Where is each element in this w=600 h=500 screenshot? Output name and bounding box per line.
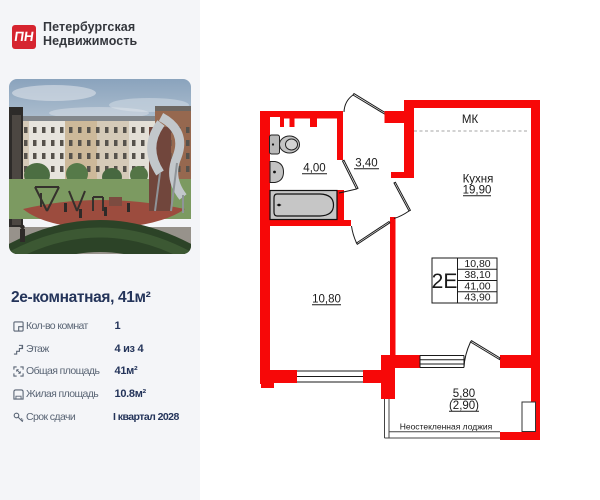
svg-text:5,80: 5,80: [453, 388, 475, 400]
svg-text:41,00: 41,00: [464, 280, 490, 292]
svg-text:Неостекленная лоджия: Неостекленная лоджия: [400, 422, 493, 432]
svg-text:(2,90): (2,90): [449, 400, 479, 412]
svg-text:МК: МК: [462, 114, 479, 126]
svg-text:43,90: 43,90: [464, 292, 490, 304]
svg-text:2Е: 2Е: [432, 270, 458, 293]
svg-text:38,10: 38,10: [464, 269, 490, 281]
svg-text:10,80: 10,80: [312, 294, 341, 306]
svg-text:10,80: 10,80: [464, 258, 490, 270]
svg-text:4,00: 4,00: [303, 163, 325, 175]
svg-text:19,90: 19,90: [463, 185, 492, 197]
svg-text:3,40: 3,40: [355, 158, 377, 170]
